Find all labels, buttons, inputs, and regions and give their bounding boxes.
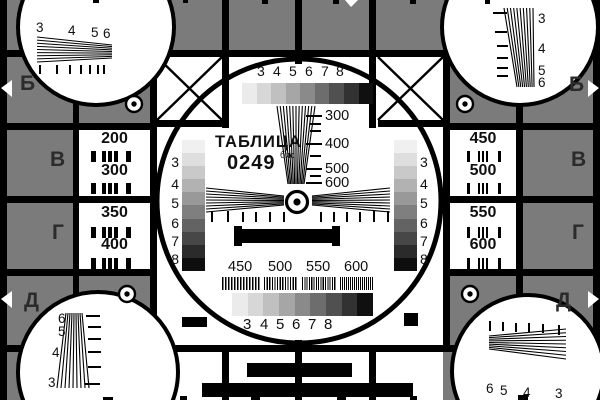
corner-bl-4: 4 — [52, 346, 60, 360]
row-label-right-v: В — [571, 149, 586, 170]
gray-step — [182, 179, 205, 192]
gray-scale-bot-5: 5 — [276, 317, 284, 332]
cell-value-450: 450 — [450, 131, 516, 147]
burst-label-450: 450 — [228, 260, 252, 275]
corner-tr-6: 6 — [538, 76, 546, 90]
row-label-right-d: Д — [556, 290, 571, 311]
corner-br-6: 6 — [486, 382, 494, 396]
gray-scale-top-5: 5 — [289, 64, 297, 78]
gray-step — [359, 83, 374, 104]
corner-tr-3: 3 — [538, 12, 546, 26]
gray-scale-right-3: 3 — [420, 155, 428, 169]
corner-bl-3: 3 — [48, 376, 56, 390]
anchor-right — [404, 313, 418, 326]
corner-tl-3: 3 — [36, 21, 44, 35]
bottom-bar-long — [202, 383, 413, 397]
gray-step — [182, 219, 205, 232]
gray-step — [394, 166, 417, 179]
burst-label-500: 500 — [268, 260, 292, 275]
gray-step — [182, 153, 205, 166]
gray-step — [257, 83, 272, 104]
gray-scale-left-8: 8 — [164, 252, 179, 266]
gray-step — [394, 192, 417, 205]
corner-br-5: 5 — [500, 384, 508, 398]
cell-value-500: 500 — [450, 163, 516, 179]
gray-scale-bot-8: 8 — [324, 317, 332, 332]
gray-step — [248, 293, 264, 316]
gray-step — [357, 293, 373, 316]
row-label-right-b: Б — [569, 74, 584, 95]
row-label-left-g: Г — [52, 222, 64, 243]
anchor-left — [182, 317, 207, 327]
gray-scale-left-3: 3 — [164, 155, 179, 169]
gray-scale-left-6: 6 — [164, 216, 179, 230]
grayscale-bar-left — [182, 140, 205, 271]
card-suffix: бис — [280, 151, 295, 160]
gray-scale-top-3: 3 — [257, 64, 265, 78]
gray-scale-right-5: 5 — [420, 196, 428, 210]
gray-scale-left-4: 4 — [164, 177, 179, 191]
burst-label-550: 550 — [306, 260, 330, 275]
gray-step — [182, 232, 205, 245]
gray-step — [286, 83, 301, 104]
gray-step — [182, 140, 205, 153]
gray-step — [182, 245, 205, 258]
row-label-left-b: Б — [20, 73, 35, 94]
bottom-bar-short — [247, 363, 352, 377]
gray-step — [300, 83, 315, 104]
corner-bl-5: 5 — [58, 325, 66, 339]
gray-step — [242, 83, 257, 104]
gray-step — [271, 83, 286, 104]
gray-step — [394, 179, 417, 192]
card-number: 0249 — [227, 153, 276, 173]
gray-step — [310, 293, 326, 316]
gray-scale-bot-6: 6 — [292, 317, 300, 332]
gray-step — [326, 293, 342, 316]
gray-scale-bot-7: 7 — [308, 317, 316, 332]
gray-step — [394, 153, 417, 166]
card-title: ТАБЛИЦА — [215, 134, 302, 151]
gray-scale-top-6: 6 — [305, 64, 313, 78]
wedge-label-300: 300 — [325, 109, 349, 124]
gray-step — [182, 192, 205, 205]
cell-value-350: 350 — [79, 205, 150, 221]
row-label-left-v: В — [50, 149, 65, 170]
gray-scale-left-7: 7 — [164, 234, 179, 248]
corner-br-3: 3 — [555, 387, 563, 400]
burst-strip-450 — [222, 277, 260, 290]
gray-step — [315, 83, 330, 104]
gray-step — [394, 258, 417, 271]
gray-step — [232, 293, 248, 316]
gray-step — [295, 293, 311, 316]
grayscale-bar-bottom — [232, 293, 373, 316]
corner-tl-4: 4 — [68, 24, 76, 38]
gray-scale-right-7: 7 — [420, 234, 428, 248]
burst-strip-600 — [340, 277, 373, 290]
row-label-left-d: Д — [24, 290, 39, 311]
cell-value-600: 600 — [450, 237, 516, 253]
corner-tl-5: 5 — [91, 26, 99, 40]
burst-strip-500 — [264, 277, 298, 290]
corner-tr-4: 4 — [538, 42, 546, 56]
gray-step — [342, 293, 358, 316]
burst-strip-550 — [302, 277, 336, 290]
gray-scale-bot-3: 3 — [243, 317, 251, 332]
card-graphics — [0, 0, 600, 400]
corner-tl-6: 6 — [103, 27, 111, 41]
gray-scale-top-4: 4 — [273, 64, 281, 78]
gray-scale-left-5: 5 — [164, 196, 179, 210]
test-card: ТАБЛИЦА 0249 бис Б В Г Д Б В Г Д 200 300… — [0, 0, 600, 400]
center-bar — [234, 229, 340, 243]
gray-step — [329, 83, 344, 104]
cell-value-300: 300 — [79, 163, 150, 179]
grayscale-bar-top — [242, 83, 373, 104]
gray-scale-top-7: 7 — [321, 64, 329, 78]
gray-step — [182, 258, 205, 271]
gray-scale-bot-4: 4 — [260, 317, 268, 332]
gray-step — [394, 140, 417, 153]
wedge-label-600: 600 — [325, 176, 349, 191]
gray-step — [344, 83, 359, 104]
gray-step — [182, 166, 205, 179]
burst-label-600: 600 — [344, 260, 368, 275]
gray-scale-right-8: 8 — [420, 252, 428, 266]
gray-step — [182, 205, 205, 218]
row-label-right-g: Г — [572, 222, 584, 243]
corner-br-4: 4 — [523, 386, 531, 400]
gray-step — [394, 219, 417, 232]
gray-scale-right-6: 6 — [420, 216, 428, 230]
gray-step — [394, 232, 417, 245]
cell-value-200: 200 — [79, 131, 150, 147]
gray-step — [263, 293, 279, 316]
gray-scale-right-4: 4 — [420, 177, 428, 191]
wedge-label-400: 400 — [325, 137, 349, 152]
cell-value-550: 550 — [450, 205, 516, 221]
cell-value-400: 400 — [79, 237, 150, 253]
grayscale-bar-right — [394, 140, 417, 271]
gray-scale-top-8: 8 — [336, 64, 344, 78]
gray-step — [394, 245, 417, 258]
gray-step — [279, 293, 295, 316]
gray-step — [394, 205, 417, 218]
